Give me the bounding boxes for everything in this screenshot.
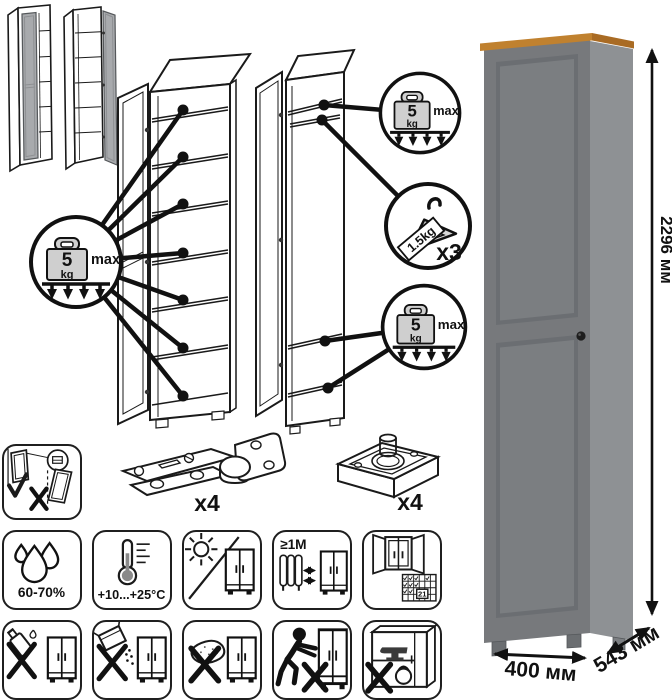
door-knob <box>576 331 585 340</box>
temperature-label: +10...+25°C <box>98 588 166 602</box>
calendar-icon: 21 <box>403 575 436 601</box>
no-dragging-tile <box>272 620 352 700</box>
instruction-sheet: 5 kg max 5 kg max 5 kg max <box>0 0 672 700</box>
wardrobe-render: 2296 мм 400 мм 543 мм <box>455 0 672 700</box>
no-overload-tile <box>362 620 442 700</box>
height-label: 2296 мм <box>657 216 672 284</box>
x-mark-icon <box>99 646 125 678</box>
sun-icon <box>185 533 217 565</box>
open-window-icon <box>373 535 424 574</box>
water-drops-icon <box>15 543 58 582</box>
height-dimension: 2296 мм <box>652 50 672 614</box>
wardrobe-front-icon <box>321 551 347 594</box>
shelf-load-badge: 5 kg max <box>31 217 121 307</box>
hinge-count-label: x4 <box>194 490 220 516</box>
ventilation-tile: 21 <box>362 530 442 610</box>
no-wet-sponge-tile <box>182 620 262 700</box>
heat-distance-tile: ≥1M <box>272 530 352 610</box>
wardrobe-side <box>590 41 633 641</box>
door-panel-lower <box>496 335 578 618</box>
load-diagrams: 5 kg max 5 kg max 5 kg max <box>0 0 480 445</box>
spacing-arrows-icon <box>304 571 314 581</box>
distance-label: ≥1M <box>280 537 307 552</box>
no-powder-tile <box>92 620 172 700</box>
wardrobe-front-icon <box>228 637 256 682</box>
load-value: 5 <box>62 250 73 271</box>
hinge-hardware: x4 <box>115 425 300 520</box>
calendar-day-label: 21 <box>418 589 427 598</box>
width-dimension: 400 мм <box>495 654 585 686</box>
foot-hardware: x4 <box>318 424 453 516</box>
wall-anchor-warning-icon <box>4 446 80 518</box>
wardrobe-front-icon <box>138 637 166 682</box>
foot-count-label: x4 <box>397 489 423 515</box>
bottom-load-badge: 5 kg max <box>383 286 466 369</box>
wardrobe-front-icon <box>226 549 254 594</box>
door-panel-upper <box>496 54 578 325</box>
load-max: max <box>91 252 120 268</box>
adjustable-foot-icon <box>338 435 438 498</box>
open-cabinet-icon <box>64 7 117 169</box>
load-unit: kg <box>410 334 422 345</box>
load-unit: kg <box>406 119 417 130</box>
hinge-icon <box>123 434 285 496</box>
radiator-icon <box>280 555 302 590</box>
x-mark-icon <box>31 489 46 509</box>
closed-cabinet-icon <box>8 5 52 171</box>
wardrobe-front-icon <box>48 637 76 682</box>
kettlebell-icon <box>396 667 411 684</box>
no-sunlight-tile <box>182 530 262 610</box>
temperature-tile: +10...+25°C <box>92 530 172 610</box>
top-shelf-load-badge: 5 kg max <box>380 73 459 152</box>
width-label: 400 мм <box>504 657 578 686</box>
load-value: 5 <box>407 102 416 121</box>
wall-anchor-warning-tile <box>2 444 82 520</box>
door-knob-highlight <box>578 333 581 336</box>
humidity-tile: 60-70% <box>2 530 82 610</box>
humidity-label: 60-70% <box>18 585 65 600</box>
wardrobe-front-icon <box>319 630 347 689</box>
load-value: 5 <box>411 315 421 335</box>
no-liquid-tile <box>2 620 82 700</box>
thermometer-icon <box>119 540 150 584</box>
load-unit: kg <box>61 269 74 281</box>
drop-icon <box>30 630 36 638</box>
